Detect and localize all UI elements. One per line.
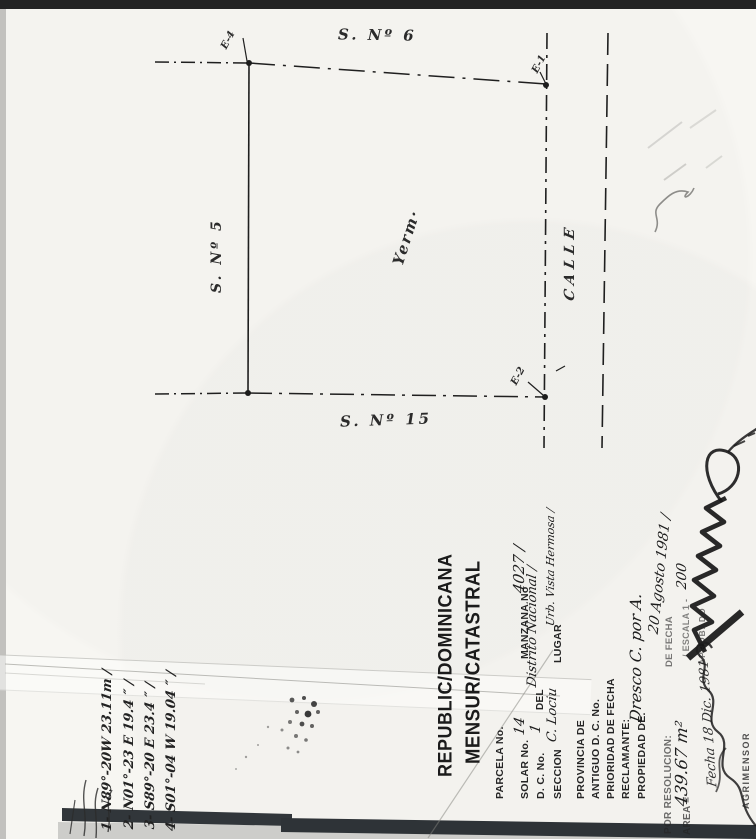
scan-top-band	[0, 0, 756, 9]
field-solar-value: 14	[512, 716, 528, 737]
field-lugar-label: LUGAR	[552, 624, 564, 663]
field-dc-label: D. C. No.	[535, 753, 547, 799]
street-label-top: S. Nº 6	[338, 25, 417, 44]
bearing-note-line: 1- N89°-20W 23.11m /	[100, 668, 115, 832]
field-agrimensor-label: AGRIMENSOR	[741, 732, 751, 809]
street-label-right: CALLE	[562, 222, 578, 303]
street-label-left: S. Nº 5	[209, 218, 225, 293]
field-lugar-value: Urb. Vista Hermosa /	[544, 507, 557, 627]
form-title-line1: REPUBLIC/DOMINICANA	[434, 554, 457, 778]
field-solar-label: SOLAR No.	[519, 740, 531, 799]
bearing-note-line: 2- N01°-23 E 19.4 ″ /	[122, 679, 137, 830]
survey-bearing-notes: 1- N89°-20W 23.11m / 2- N01°-23 E 19.4 ″…	[90, 618, 190, 833]
field-seccion-value: C. Lociu	[545, 687, 560, 744]
field-escala-value: 200	[674, 562, 690, 591]
field-antiguo-dc-label: ANTIGUO D. C. No.	[590, 699, 602, 799]
street-label-bottom: S. Nº 15	[340, 409, 433, 430]
field-defecha-label: DE FECHA	[664, 616, 675, 667]
field-area-value: 439.67 m²	[672, 719, 691, 808]
field-propiedad-label: PROPIEDAD DE.	[636, 712, 648, 799]
field-provincia-label: PROVINCIA DE	[575, 720, 587, 799]
field-aprobado-label: APROBADO	[697, 607, 707, 665]
field-seccion-label: SECCION	[552, 749, 564, 799]
bearing-note-line: 3- S89°-20 E 23.4 ″ /	[143, 681, 158, 830]
field-del-value: Distrito Nacional /	[525, 564, 540, 688]
field-escala-label: / ESCALA 1 -	[681, 599, 691, 657]
field-dc-value: 1	[528, 723, 544, 735]
survey-form-block: REPUBLIC/DOMINICANA MENSUR/CATASTRAL PAR…	[425, 544, 756, 839]
field-propiedad-value: Dresco C. por A.	[627, 592, 645, 724]
field-prioridad-label: PRIORIDAD DE FECHA	[605, 678, 617, 799]
form-title-line2: MENSUR/CATASTRAL	[461, 560, 485, 764]
field-reclamante-label: RECLAMANTE:	[620, 719, 632, 799]
field-parcela-label: PARCELA No.	[494, 726, 506, 799]
field-fecha-firma-value: Fecha 18 Dic. 1981	[696, 659, 720, 788]
bearing-note-line: 4- S01°-04 W 19.04 ″ /	[164, 670, 179, 833]
